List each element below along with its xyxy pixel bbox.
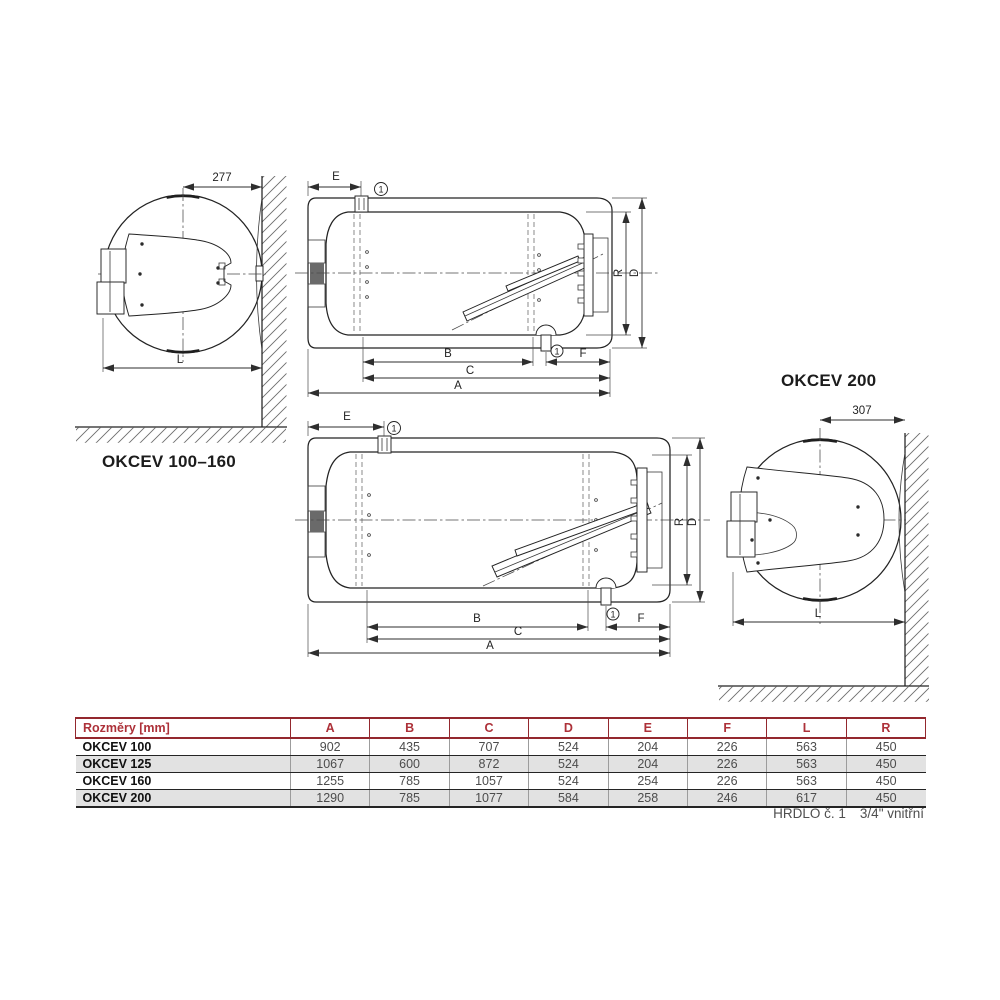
cell-value: 435 [370, 738, 449, 756]
column-header-R: R [846, 718, 925, 738]
ground-hatch [76, 428, 286, 443]
top-port [378, 436, 391, 453]
cell-value: 226 [687, 738, 766, 756]
column-header-rozmery: Rozměry [mm] [76, 718, 291, 738]
section-view-large: 1 1 E B F C A R D [295, 411, 710, 657]
column-header-A: A [291, 718, 370, 738]
cell-value: 450 [846, 790, 925, 808]
cell-value: 563 [767, 756, 846, 773]
cell-value: 563 [767, 773, 846, 790]
column-header-C: C [449, 718, 528, 738]
left-cap-block [308, 284, 325, 307]
column-header-F: F [687, 718, 766, 738]
cell-value: 204 [608, 738, 687, 756]
dim-label-R: R [613, 269, 625, 277]
column-header-B: B [370, 718, 449, 738]
bottom-port [541, 335, 551, 351]
cell-value: 600 [370, 756, 449, 773]
wall-hatch [906, 433, 929, 686]
port-marker-label: 1 [610, 610, 615, 620]
row-label: OKCEV 160 [76, 773, 291, 790]
footnote-hrdlo: HRDLO č. 13/4" vnitřní [773, 806, 924, 821]
table-row-okcev-125: OKCEV 125 1067 600 872 524 204 226 563 4… [76, 756, 926, 773]
bottom-dome [596, 578, 616, 588]
cell-value: 872 [449, 756, 528, 773]
dim-label-F: F [637, 613, 644, 625]
dim-label-B: B [473, 613, 481, 625]
cell-value: 450 [846, 756, 925, 773]
dimensions-table: Rozměry [mm] A B C D E F L R OKCEV 100 9… [75, 717, 926, 808]
port-marker-label: 1 [554, 347, 559, 357]
cover-outline [122, 234, 231, 316]
dim-label-D: D [687, 518, 699, 526]
column-header-D: D [529, 718, 608, 738]
dim-label-D: D [629, 269, 641, 277]
mount-bracket-upper [731, 492, 757, 522]
cell-value: 785 [370, 790, 449, 808]
footnote-label: HRDLO č. 1 [773, 806, 846, 821]
left-cap-strip [310, 263, 324, 284]
flange-teeth [578, 244, 584, 303]
tube-line [495, 508, 649, 572]
left-cap-block [308, 532, 325, 557]
caption-okcev-100-160: OKCEV 100–160 [102, 452, 236, 472]
cell-value: 1290 [291, 790, 370, 808]
wall-hatch [263, 176, 287, 427]
row-label: OKCEV 125 [76, 756, 291, 773]
dim-label-277: 277 [212, 172, 231, 184]
technical-sheet: .out{stroke:#232323;stroke-width:1.25;fi… [0, 0, 1000, 1000]
cell-value: 563 [767, 738, 846, 756]
cell-value: 254 [608, 773, 687, 790]
cell-value: 258 [608, 790, 687, 808]
mount-bracket-lower [97, 282, 124, 314]
table-header-row: Rozměry [mm] A B C D E F L R [76, 718, 926, 738]
dim-label-A: A [454, 380, 462, 392]
inner-tank [326, 452, 637, 588]
cell-value: 785 [370, 773, 449, 790]
dim-label-L: L [177, 354, 184, 366]
wall-hook [256, 266, 263, 281]
table-row-okcev-160: OKCEV 160 1255 785 1057 524 254 226 563 … [76, 773, 926, 790]
footnote-value: 3/4" vnitřní [860, 806, 924, 821]
flange-insulation [593, 238, 608, 312]
dim-label-R: R [674, 518, 686, 526]
cell-value: 1067 [291, 756, 370, 773]
element-rod [515, 502, 649, 556]
left-cap-block [308, 486, 325, 511]
cell-value: 226 [687, 756, 766, 773]
wall-bracket-profile [899, 453, 905, 593]
dim-label-307: 307 [852, 405, 871, 417]
cell-value: 246 [687, 790, 766, 808]
port-marker-label: 1 [378, 185, 383, 195]
left-cap-strip [310, 511, 324, 532]
cover-outline [739, 467, 884, 572]
cell-value: 226 [687, 773, 766, 790]
ground-hatch [719, 687, 929, 702]
cell-value: 524 [529, 756, 608, 773]
bottom-port [601, 588, 611, 605]
cell-value: 524 [529, 773, 608, 790]
cell-value: 902 [291, 738, 370, 756]
cell-value: 1255 [291, 773, 370, 790]
cell-value: 584 [529, 790, 608, 808]
port-marker-label: 1 [391, 424, 396, 434]
cell-value: 617 [767, 790, 846, 808]
cell-value: 204 [608, 756, 687, 773]
flange-teeth [631, 480, 637, 557]
section-view-small: 1 1 E B F C A R D [295, 171, 658, 397]
column-header-E: E [608, 718, 687, 738]
cell-value: 524 [529, 738, 608, 756]
dim-label-C: C [514, 626, 522, 638]
cell-value: 450 [846, 738, 925, 756]
column-header-L: L [767, 718, 846, 738]
dim-label-B: B [444, 348, 452, 360]
dim-label-C: C [466, 365, 474, 377]
dim-label-L: L [815, 608, 822, 620]
cell-value: 450 [846, 773, 925, 790]
end-view-large: 307 L [718, 405, 929, 702]
table-row-okcev-100: OKCEV 100 902 435 707 524 204 226 563 45… [76, 738, 926, 756]
tube-line [465, 261, 587, 316]
table-row-okcev-200: OKCEV 200 1290 785 1077 584 258 246 617 … [76, 790, 926, 808]
technical-drawing: .out{stroke:#232323;stroke-width:1.25;fi… [0, 0, 1000, 712]
heating-element-tube [463, 257, 589, 321]
flange-plate [637, 468, 647, 572]
top-port [355, 196, 368, 212]
cell-value: 707 [449, 738, 528, 756]
dim-label-E: E [332, 171, 340, 183]
caption-okcev-200: OKCEV 200 [781, 371, 876, 391]
dim-label-E: E [343, 411, 351, 423]
mount-bracket-upper [101, 249, 126, 283]
cell-value: 1057 [449, 773, 528, 790]
dim-label-F: F [579, 348, 586, 360]
row-label: OKCEV 100 [76, 738, 291, 756]
end-view-small: 277 L [75, 172, 287, 443]
row-label: OKCEV 200 [76, 790, 291, 808]
left-cap-block [308, 240, 325, 263]
bottom-dome [536, 325, 556, 335]
dim-label-A: A [486, 640, 494, 652]
flange-plate [584, 234, 593, 316]
cell-value: 1077 [449, 790, 528, 808]
